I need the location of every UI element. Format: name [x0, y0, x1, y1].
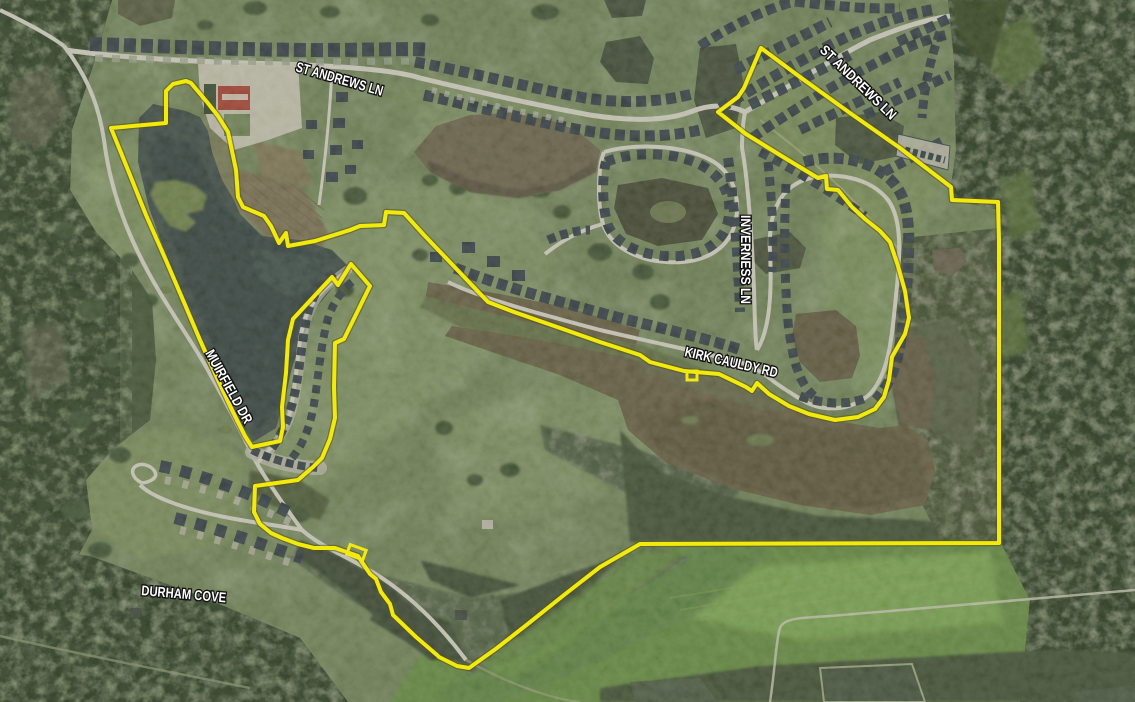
svg-text:INVERNESS LN: INVERNESS LN	[738, 215, 754, 304]
